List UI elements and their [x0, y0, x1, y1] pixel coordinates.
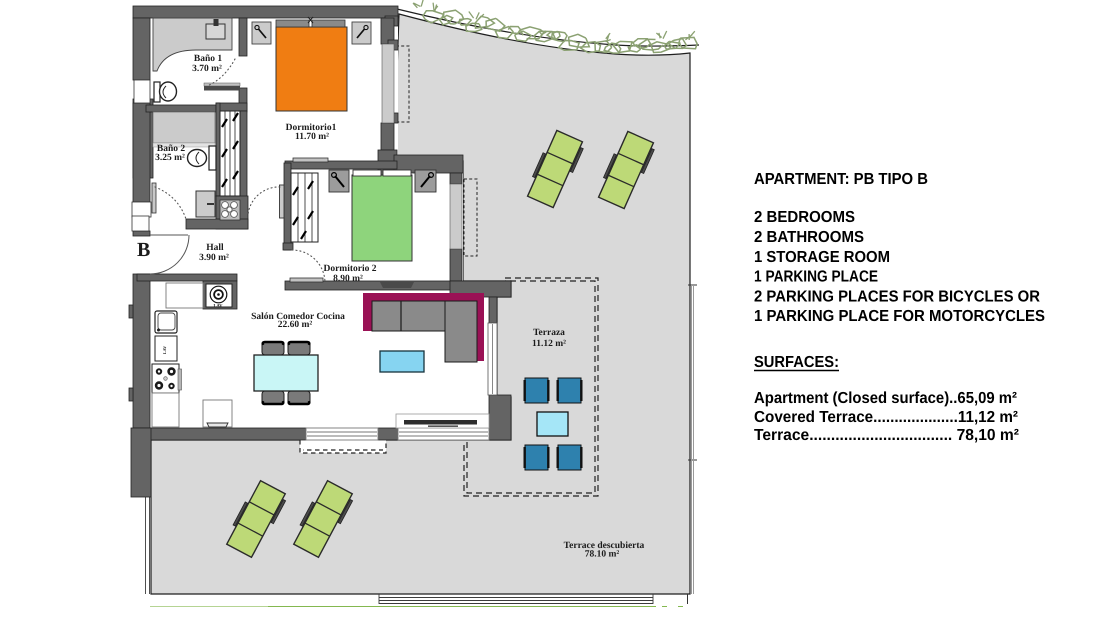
svg-text:1 PARKING PLACE: 1 PARKING PLACE — [754, 269, 878, 286]
svg-text:SURFACES:: SURFACES: — [754, 354, 839, 371]
svg-text:Covered Terrace...............: Covered Terrace....................11,12… — [754, 409, 1018, 426]
svg-text:Hall: Hall — [206, 243, 224, 253]
svg-text:Baño 1: Baño 1 — [194, 54, 222, 64]
svg-text:Terraza: Terraza — [533, 328, 565, 338]
svg-text:3.25 m²: 3.25 m² — [155, 153, 185, 163]
svg-text:B: B — [137, 239, 150, 261]
svg-text:LAV: LAV — [214, 303, 224, 308]
svg-text:3.90 m²: 3.90 m² — [199, 253, 229, 263]
svg-text:2 BATHROOMS: 2 BATHROOMS — [754, 229, 864, 246]
svg-text:2 PARKING PLACES FOR BICYCLES: 2 PARKING PLACES FOR BICYCLES OR — [754, 289, 1040, 306]
svg-text:22.60 m²: 22.60 m² — [278, 320, 313, 330]
svg-text:Apartment (Closed surface)..65: Apartment (Closed surface)..65,09 m² — [754, 390, 1017, 407]
svg-text:APARTMENT: PB TIPO B: APARTMENT: PB TIPO B — [754, 171, 928, 188]
svg-text:Terrace.......................: Terrace.................................… — [754, 427, 1019, 444]
svg-text:1 PARKING PLACE FOR MOTORCYCLE: 1 PARKING PLACE FOR MOTORCYCLES — [754, 308, 1045, 325]
svg-text:1 STORAGE ROOM: 1 STORAGE ROOM — [754, 249, 890, 266]
svg-text:78.10 m²: 78.10 m² — [585, 550, 620, 560]
svg-text:8.90 m²: 8.90 m² — [333, 274, 363, 284]
svg-text:3.70 m²: 3.70 m² — [192, 64, 222, 74]
svg-text:LAV: LAV — [162, 346, 167, 354]
svg-text:11.70 m²: 11.70 m² — [295, 132, 329, 142]
svg-text:11.12 m²: 11.12 m² — [532, 339, 566, 349]
svg-text:2 BEDROOMS: 2 BEDROOMS — [754, 209, 855, 226]
svg-text:Dormitorio 2: Dormitorio 2 — [323, 264, 376, 274]
